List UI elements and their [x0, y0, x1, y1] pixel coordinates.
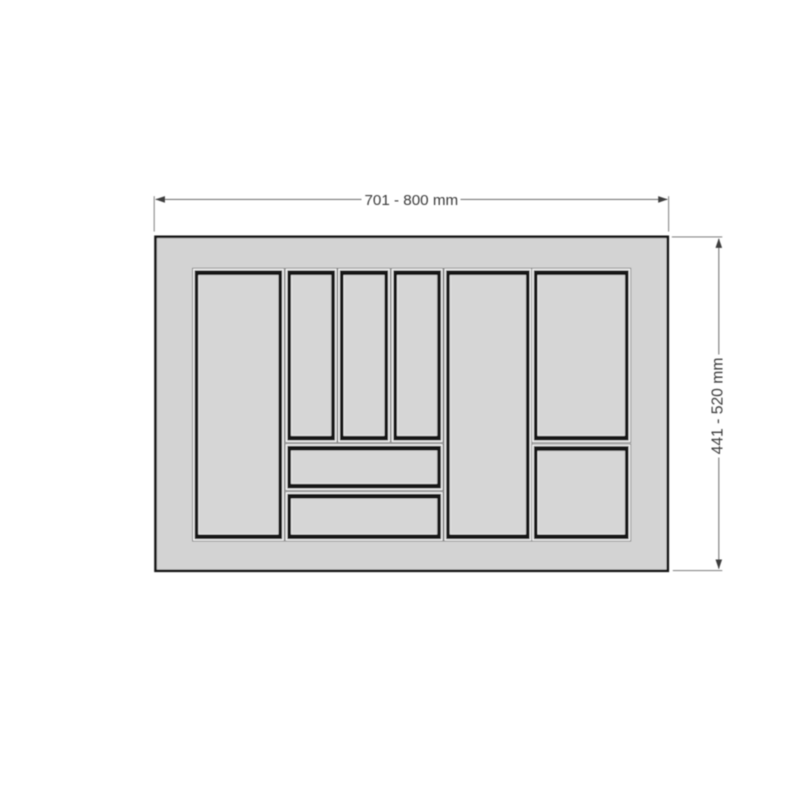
svg-text:701 - 800 mm: 701 - 800 mm: [364, 192, 458, 209]
svg-text:441 - 520 mm: 441 - 520 mm: [710, 358, 727, 455]
